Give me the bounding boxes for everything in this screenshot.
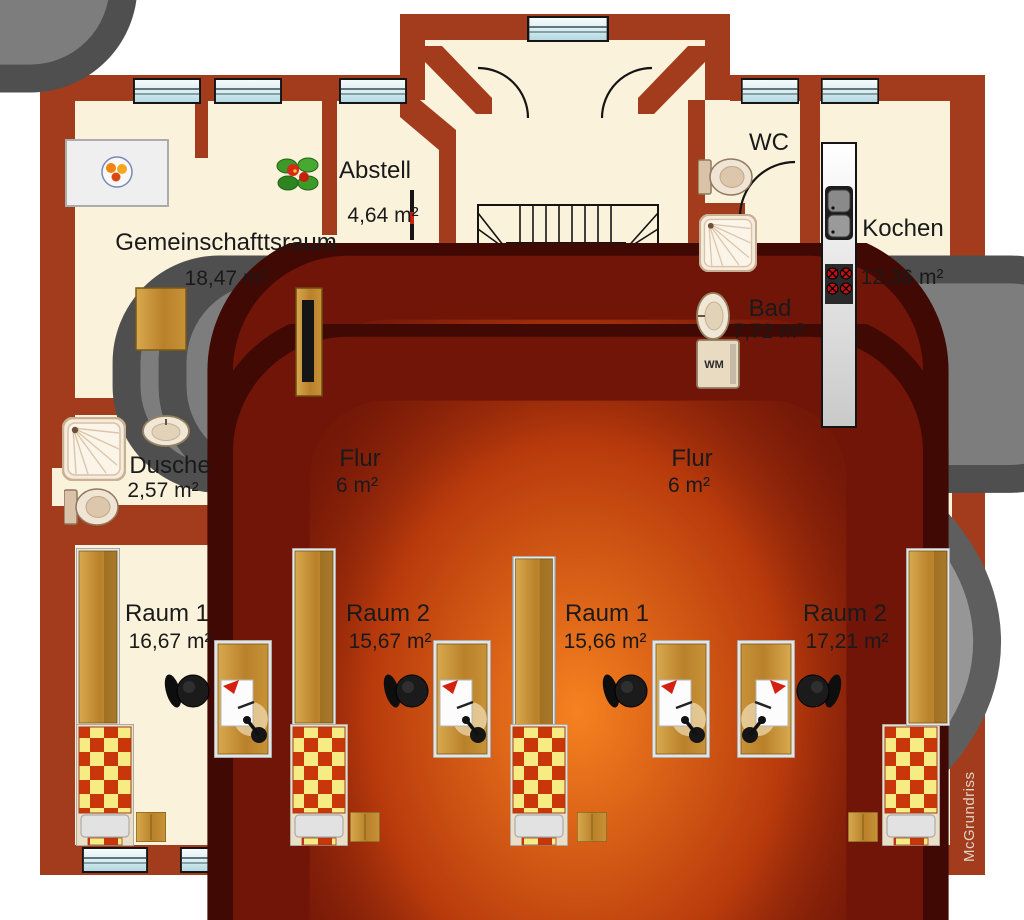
stove-icon (825, 264, 853, 304)
room-label: Raum 1 (565, 600, 649, 627)
room-label: Dusche (129, 452, 210, 479)
bed-icon (290, 724, 348, 846)
wall (705, 14, 730, 100)
kitchen-counter-icon (822, 143, 856, 427)
coffee-table-icon (136, 288, 186, 350)
shower-icon (700, 215, 756, 271)
area-label: 6 m² (336, 474, 378, 497)
nightstand-icon (848, 812, 878, 842)
bed-icon (882, 724, 940, 846)
window-icon (134, 79, 200, 103)
area-label: 16,67 m² (129, 630, 212, 653)
bed-icon (510, 724, 568, 846)
kitchen-sink-icon (825, 186, 853, 240)
area-label: 15,66 m² (564, 630, 647, 653)
area-label: 4,64 m² (347, 204, 418, 227)
desk-icon (433, 640, 491, 758)
area-label: 7,72 m² (732, 320, 803, 343)
wardrobe-icon (513, 556, 556, 728)
area-label: 6 m² (668, 474, 710, 497)
window-icon (340, 79, 406, 103)
fruit-plate-icon (102, 157, 132, 187)
area-label: 12,36 m² (861, 266, 944, 289)
desk-icon (652, 640, 710, 758)
bed-icon (76, 724, 134, 846)
wardrobe-icon (906, 548, 950, 726)
wall (195, 100, 208, 158)
room-label: Raum 1 (125, 600, 209, 627)
window-icon (83, 848, 147, 872)
area-label: 17,21 m² (806, 630, 889, 653)
nightstand-icon (577, 812, 607, 842)
floor-plan-page: WM (0, 0, 1024, 920)
sink-icon (143, 416, 189, 446)
washing-machine-icon: WM (697, 340, 739, 388)
wardrobe-icon (292, 548, 336, 726)
room-label: Kochen (862, 215, 943, 242)
dining-chair-icon (0, 0, 123, 79)
room-label: WC (749, 129, 789, 156)
nightstand-icon (136, 812, 166, 842)
sink-icon (697, 293, 729, 339)
wardrobe-icon (76, 548, 120, 726)
window-icon (742, 79, 798, 103)
room-label: Flur (671, 445, 712, 472)
wall (322, 100, 337, 235)
room-label: Flur (339, 445, 380, 472)
desk-icon (214, 640, 272, 758)
area-label: 15,67 m² (349, 630, 432, 653)
toilet-icon (64, 489, 118, 525)
room-label: Raum 2 (346, 600, 430, 627)
floor-plan: WM (0, 0, 1024, 920)
window-icon (822, 79, 878, 103)
desk-icon (737, 640, 795, 758)
watermark: McGrundriss (961, 771, 978, 862)
room-label: Gemeinschafttsraum (115, 229, 336, 256)
room-label: Bad (749, 295, 792, 322)
toilet-icon (698, 159, 752, 195)
area-label: 18,47 m² (185, 267, 268, 290)
room-label: Raum 2 (803, 600, 887, 627)
room-label: Abstell (339, 157, 411, 184)
nightstand-icon (350, 812, 380, 842)
wm-label: WM (704, 359, 724, 371)
window-icon (528, 17, 608, 41)
sideboard-icon (296, 288, 322, 396)
area-label: 2,57 m² (127, 479, 198, 502)
window-icon (215, 79, 281, 103)
shower-icon (63, 418, 125, 480)
